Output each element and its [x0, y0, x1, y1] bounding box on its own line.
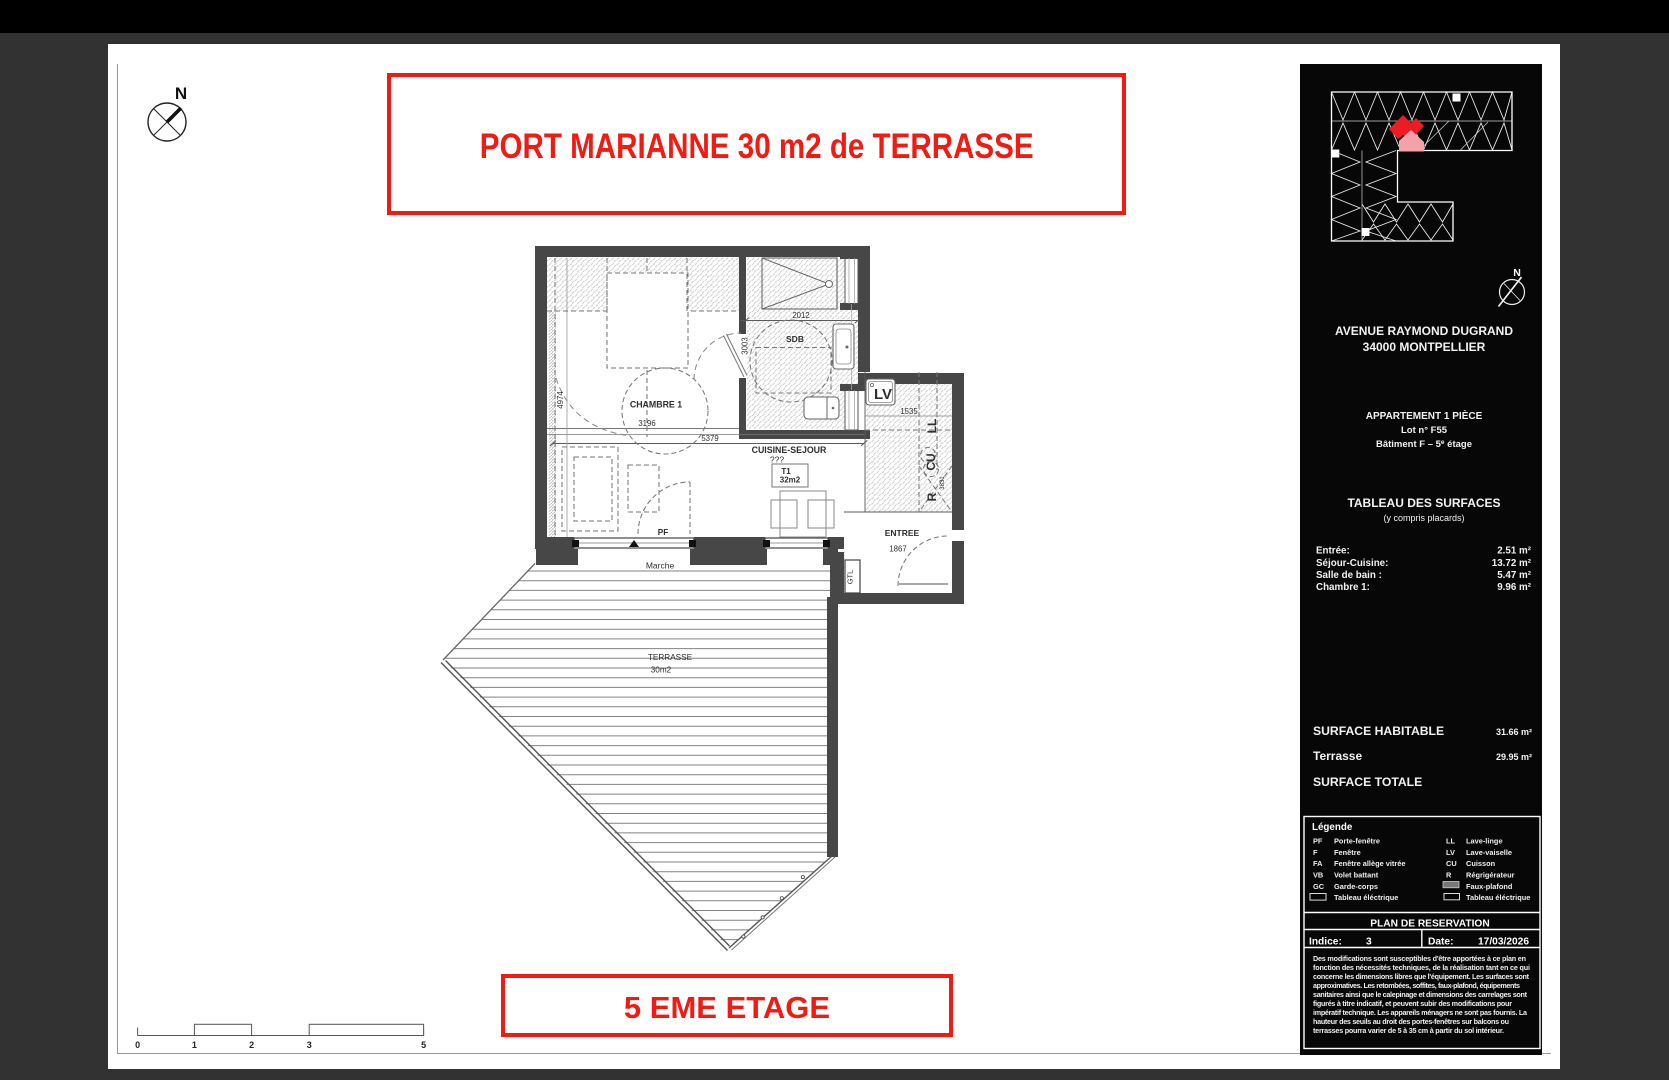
svg-text:CU: CU	[924, 453, 938, 470]
svg-text:1: 1	[192, 1040, 197, 1050]
svg-text:SURFACE HABITABLE: SURFACE HABITABLE	[1313, 724, 1444, 738]
svg-text:approximatives. Les retombées,: approximatives. Les retombées, soffites,…	[1313, 981, 1520, 990]
svg-text:2: 2	[249, 1040, 254, 1050]
svg-text:Fenêtre: Fenêtre	[1334, 848, 1361, 857]
svg-text:Régrigérateur: Régrigérateur	[1466, 871, 1515, 880]
svg-text:2012: 2012	[792, 311, 809, 320]
svg-text:3: 3	[307, 1040, 312, 1050]
svg-text:32m2: 32m2	[780, 476, 801, 485]
svg-text:1535: 1535	[900, 407, 918, 416]
svg-text:13.72 m²: 13.72 m²	[1492, 558, 1532, 569]
svg-text:CUISINE-SEJOUR: CUISINE-SEJOUR	[752, 445, 827, 455]
svg-text:LL: LL	[925, 419, 939, 434]
svg-text:terrasses pourra varier de 5 à: terrasses pourra varier de 5 à 35 cm à p…	[1313, 1026, 1504, 1035]
svg-text:Salle de bain :: Salle de bain :	[1316, 570, 1382, 581]
svg-text:Faux-plafond: Faux-plafond	[1466, 882, 1513, 891]
svg-text:1867: 1867	[889, 545, 906, 554]
svg-text:Garde-corps: Garde-corps	[1334, 882, 1378, 891]
svg-text:0: 0	[135, 1040, 140, 1050]
svg-text:Cuisson: Cuisson	[1466, 859, 1496, 868]
svg-text:Lave-vaiselle: Lave-vaiselle	[1466, 848, 1512, 857]
svg-text:GC: GC	[1313, 882, 1325, 891]
svg-text:5379: 5379	[701, 434, 718, 443]
svg-text:Bâtiment F – 5e étage: Bâtiment F – 5e étage	[1376, 439, 1472, 450]
svg-text:concerne les dimensions libres: concerne les dimensions libres que l'équ…	[1313, 972, 1530, 981]
svg-text:LL: LL	[1446, 837, 1456, 846]
svg-text:F: F	[1313, 848, 1318, 857]
svg-text:???: ???	[770, 455, 784, 465]
svg-text:PF: PF	[658, 528, 668, 537]
svg-text:R: R	[1446, 871, 1452, 880]
svg-text:Marche: Marche	[646, 561, 675, 571]
svg-text:Porte-fenêtre: Porte-fenêtre	[1334, 837, 1380, 846]
svg-text:Indice:: Indice:	[1309, 937, 1342, 948]
svg-text:impératif technique. Les appar: impératif technique. Les appareils ménag…	[1313, 1008, 1528, 1017]
svg-text:Des modifications sont suscept: Des modifications sont susceptibles d'êt…	[1313, 954, 1526, 963]
svg-text:N: N	[175, 84, 187, 103]
svg-text:hauteur des seuils au droit de: hauteur des seuils au droit des portes-f…	[1313, 1017, 1509, 1026]
svg-text:CHAMBRE 1: CHAMBRE 1	[630, 400, 682, 410]
svg-text:PLAN DE RESERVATION: PLAN DE RESERVATION	[1370, 919, 1489, 930]
svg-text:Date:: Date:	[1428, 937, 1453, 948]
svg-text:Entrée:: Entrée:	[1316, 546, 1350, 557]
svg-text:29.95 m²: 29.95 m²	[1496, 752, 1532, 762]
svg-text:N: N	[1513, 267, 1521, 279]
svg-text:AVENUE RAYMOND DUGRAND: AVENUE RAYMOND DUGRAND	[1335, 324, 1513, 338]
svg-text:31.66 m²: 31.66 m²	[1496, 727, 1532, 737]
svg-text:PF: PF	[1313, 837, 1323, 846]
svg-text:Lot n° F55: Lot n° F55	[1401, 425, 1448, 436]
svg-text:SDB: SDB	[786, 334, 804, 344]
svg-text:sanitaires ainsi que le calepi: sanitaires ainsi que le calepinage et di…	[1313, 990, 1528, 999]
svg-text:3: 3	[1366, 937, 1372, 948]
svg-text:4974: 4974	[556, 391, 565, 409]
svg-text:GTL: GTL	[846, 570, 855, 585]
svg-text:R: R	[925, 492, 939, 501]
svg-text:LV: LV	[1446, 848, 1455, 857]
svg-text:APPARTEMENT 1 PIÈCE: APPARTEMENT 1 PIÈCE	[1366, 409, 1483, 422]
svg-text:Chambre 1:: Chambre 1:	[1316, 582, 1370, 593]
svg-text:Tableau éléctrique: Tableau éléctrique	[1466, 893, 1530, 902]
svg-text:Séjour-Cuisine:: Séjour-Cuisine:	[1316, 558, 1388, 569]
svg-text:LV: LV	[874, 386, 892, 403]
svg-text:3196: 3196	[638, 419, 655, 428]
svg-text:TABLEAU DES SURFACES: TABLEAU DES SURFACES	[1347, 496, 1500, 510]
svg-text:Lave-linge: Lave-linge	[1466, 837, 1503, 846]
svg-text:fonction des nécessités techni: fonction des nécessités techniques, de l…	[1313, 963, 1530, 972]
svg-text:Volet battant: Volet battant	[1334, 871, 1379, 880]
svg-text:figurés à titre indicatif, et: figurés à titre indicatif, et peuvent su…	[1313, 999, 1512, 1008]
svg-text:34000 MONTPELLIER: 34000 MONTPELLIER	[1363, 340, 1486, 354]
svg-text:17/03/2026: 17/03/2026	[1478, 937, 1529, 948]
svg-text:5: 5	[421, 1040, 426, 1050]
svg-text:Tableau éléctrique: Tableau éléctrique	[1334, 893, 1398, 902]
svg-text:TERRASSE: TERRASSE	[648, 653, 693, 662]
svg-text:SURFACE TOTALE: SURFACE TOTALE	[1313, 775, 1422, 789]
svg-text:VB: VB	[1313, 871, 1323, 880]
svg-text:Fenêtre allège vitrée: Fenêtre allège vitrée	[1334, 859, 1405, 868]
svg-text:FA: FA	[1313, 859, 1323, 868]
svg-text:3831: 3831	[940, 476, 946, 490]
svg-text:Légende: Légende	[1312, 822, 1353, 833]
svg-text:(y compris placards): (y compris placards)	[1383, 513, 1464, 523]
svg-text:Terrasse: Terrasse	[1313, 749, 1362, 763]
svg-text:CU: CU	[1446, 859, 1457, 868]
svg-text:5.47 m²: 5.47 m²	[1497, 570, 1532, 581]
svg-text:3003: 3003	[741, 337, 750, 354]
svg-text:2.51 m²: 2.51 m²	[1497, 546, 1532, 557]
svg-text:ENTREE: ENTREE	[885, 528, 920, 538]
svg-text:30m2: 30m2	[651, 666, 672, 675]
svg-text:9.96 m²: 9.96 m²	[1497, 582, 1532, 593]
